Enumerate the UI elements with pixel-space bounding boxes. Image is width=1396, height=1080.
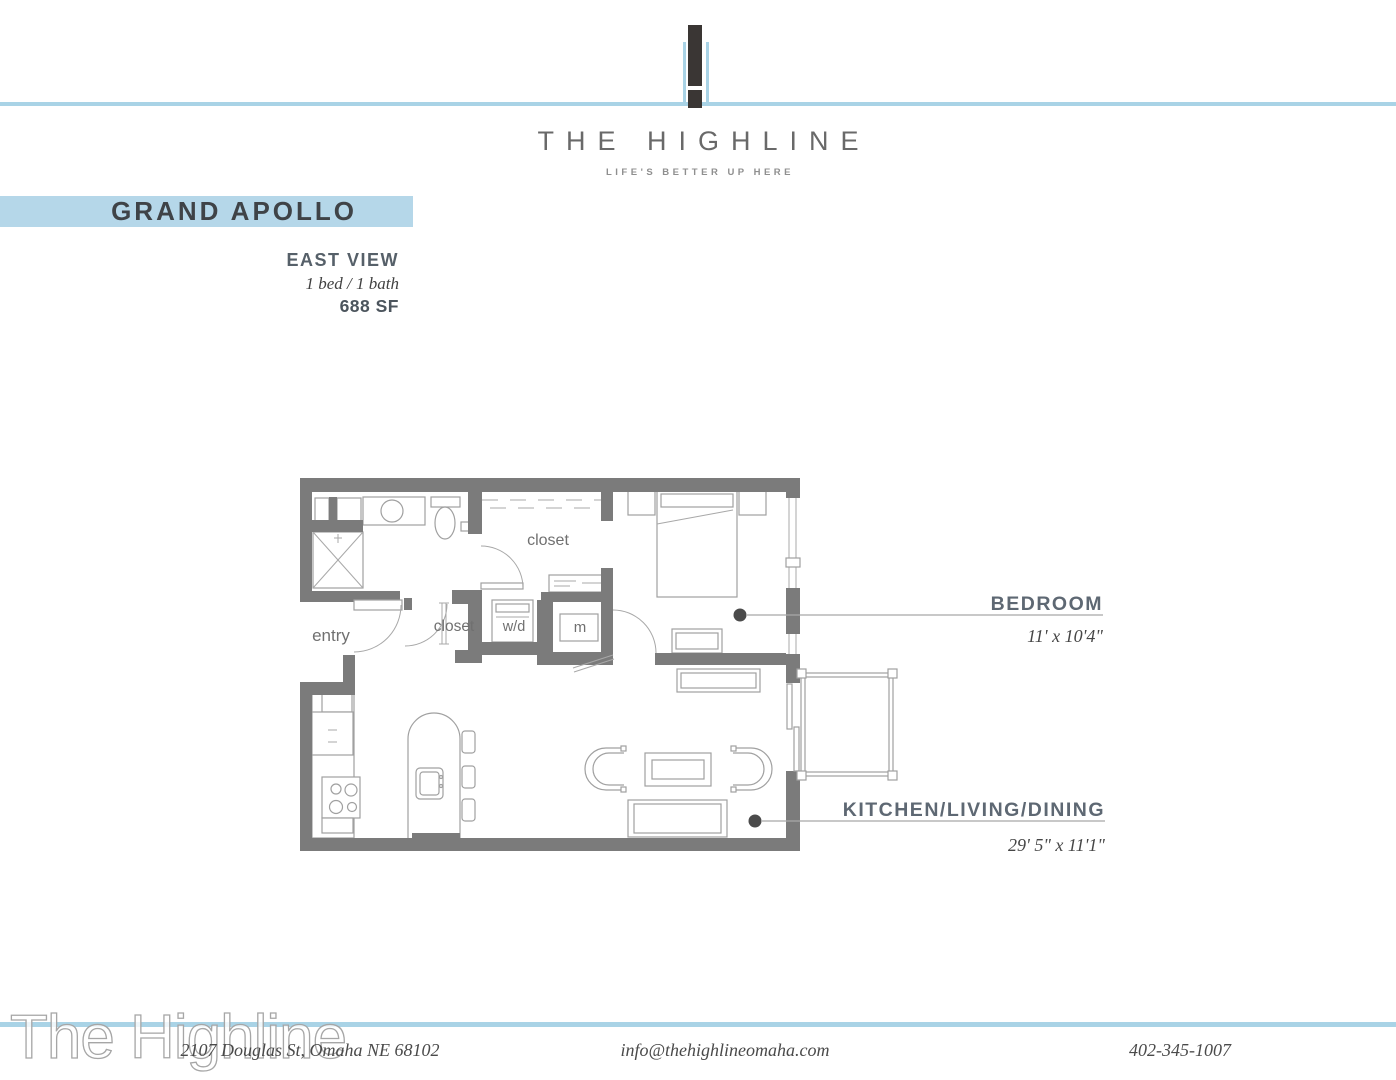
mechanical-label: m xyxy=(574,619,587,636)
footer-phone: 402-345-1007 xyxy=(1110,1040,1250,1061)
bath-door-leaf xyxy=(481,583,523,589)
logo-mark-bar-base xyxy=(688,90,702,108)
washer-dryer-label: w/d xyxy=(502,619,526,635)
plan-view: EAST VIEW xyxy=(139,250,399,271)
flyer-page: THE HIGHLINE LIFE'S BETTER UP HERE GRAND… xyxy=(0,0,1396,1080)
plan-config: 1 bed / 1 bath xyxy=(139,274,399,294)
bedroom-dims: 11' x 10'4" xyxy=(1027,626,1103,646)
windows xyxy=(786,498,800,771)
entry-door-leaf xyxy=(354,600,402,610)
living-furniture xyxy=(585,669,772,837)
bedroom-leader-dot xyxy=(734,609,747,622)
plan-title-banner: GRAND APOLLO xyxy=(0,196,413,227)
logo-mark-bar xyxy=(688,25,702,86)
window-mullion xyxy=(786,558,800,567)
entry-label: entry xyxy=(312,626,350,645)
kitchen-fixtures xyxy=(312,690,475,843)
footer-address: 2107 Douglas St, Omaha NE 68102 xyxy=(150,1040,470,1061)
footer-email: info@thehighlineomaha.com xyxy=(600,1040,850,1061)
plan-title: GRAND APOLLO xyxy=(0,196,413,227)
balcony xyxy=(797,669,897,780)
brand-tagline: LIFE'S BETTER UP HERE xyxy=(0,167,1396,178)
kitchen-living-name: KITCHEN/LIVING/DINING xyxy=(843,799,1105,821)
kitchen-living-dims: 29' 5" x 11'1" xyxy=(1008,835,1105,855)
kitchen-leader-dot xyxy=(749,815,762,828)
logo-left-line xyxy=(683,42,686,103)
walk-in-closet-label: closet xyxy=(527,532,569,549)
plan-meta: EAST VIEW 1 bed / 1 bath 688 SF xyxy=(139,250,399,317)
logo-right-line xyxy=(706,42,709,103)
bedroom-name: BEDROOM xyxy=(991,593,1103,615)
floorplan-drawing: closet entry closet w/d m BEDROOM 11' x … xyxy=(280,460,1140,870)
watermark: The Highline xyxy=(10,1002,346,1073)
brand-name: THE HIGHLINE xyxy=(0,126,1396,157)
hall-closet-label: closet xyxy=(434,618,475,635)
plan-area: 688 SF xyxy=(139,296,399,317)
